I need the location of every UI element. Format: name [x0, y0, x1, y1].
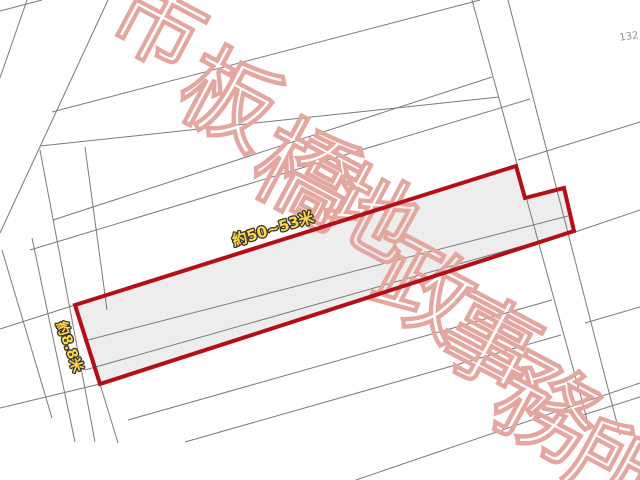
map-canvas[interactable]: 市板橋地政事務所 約50~53米 約8.8米 132: [0, 0, 640, 480]
